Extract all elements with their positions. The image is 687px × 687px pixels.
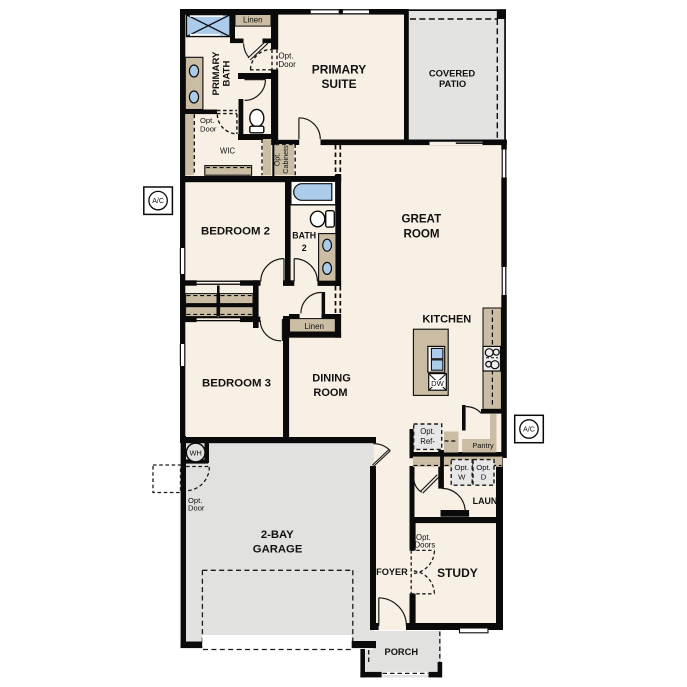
svg-text:PATIO: PATIO [439,78,466,89]
svg-text:Ref-: Ref- [420,437,435,446]
svg-text:Linen: Linen [243,15,263,24]
svg-text:BATH: BATH [222,60,233,86]
svg-text:PRIMARY: PRIMARY [312,63,366,77]
svg-text:PORCH: PORCH [385,647,419,657]
svg-text:DW: DW [431,379,444,388]
svg-text:D: D [481,473,487,482]
svg-text:KITCHEN: KITCHEN [422,313,471,325]
svg-text:A/C: A/C [523,427,535,434]
svg-text:ROOM: ROOM [403,228,439,241]
svg-text:Opt.: Opt. [420,427,435,436]
svg-text:GREAT: GREAT [401,212,441,225]
svg-text:Opt.: Opt. [476,463,491,472]
svg-text:ROOM: ROOM [313,387,347,399]
svg-text:PRIMARY: PRIMARY [211,51,222,95]
svg-text:A/C: A/C [152,198,164,205]
svg-text:Cabinets: Cabinets [281,145,290,174]
svg-text:Door: Door [200,125,217,134]
svg-text:Door: Door [278,60,296,69]
svg-text:COVERED: COVERED [429,68,476,79]
svg-text:STUDY: STUDY [437,566,478,580]
svg-text:Pantry: Pantry [472,441,494,450]
svg-text:BEDROOM 2: BEDROOM 2 [201,226,270,238]
svg-text:Door: Door [188,504,205,513]
svg-text:Opt.: Opt. [278,52,293,61]
svg-text:Opt.: Opt. [454,463,469,472]
svg-text:SUITE: SUITE [321,77,356,91]
svg-text:Doors: Doors [415,541,436,550]
svg-text:Linen: Linen [304,322,324,331]
svg-text:WH: WH [190,448,202,457]
svg-text:LAUN: LAUN [473,496,498,506]
svg-text:2: 2 [302,243,307,253]
svg-text:GARAGE: GARAGE [253,544,303,556]
svg-text:DINING: DINING [312,372,351,384]
svg-text:FOYER: FOYER [376,567,408,577]
svg-text:BEDROOM 3: BEDROOM 3 [202,378,271,390]
svg-text:2-BAY: 2-BAY [261,529,294,541]
svg-text:BATH: BATH [292,231,316,241]
svg-text:W: W [458,473,466,482]
svg-text:WIC: WIC [220,147,236,156]
